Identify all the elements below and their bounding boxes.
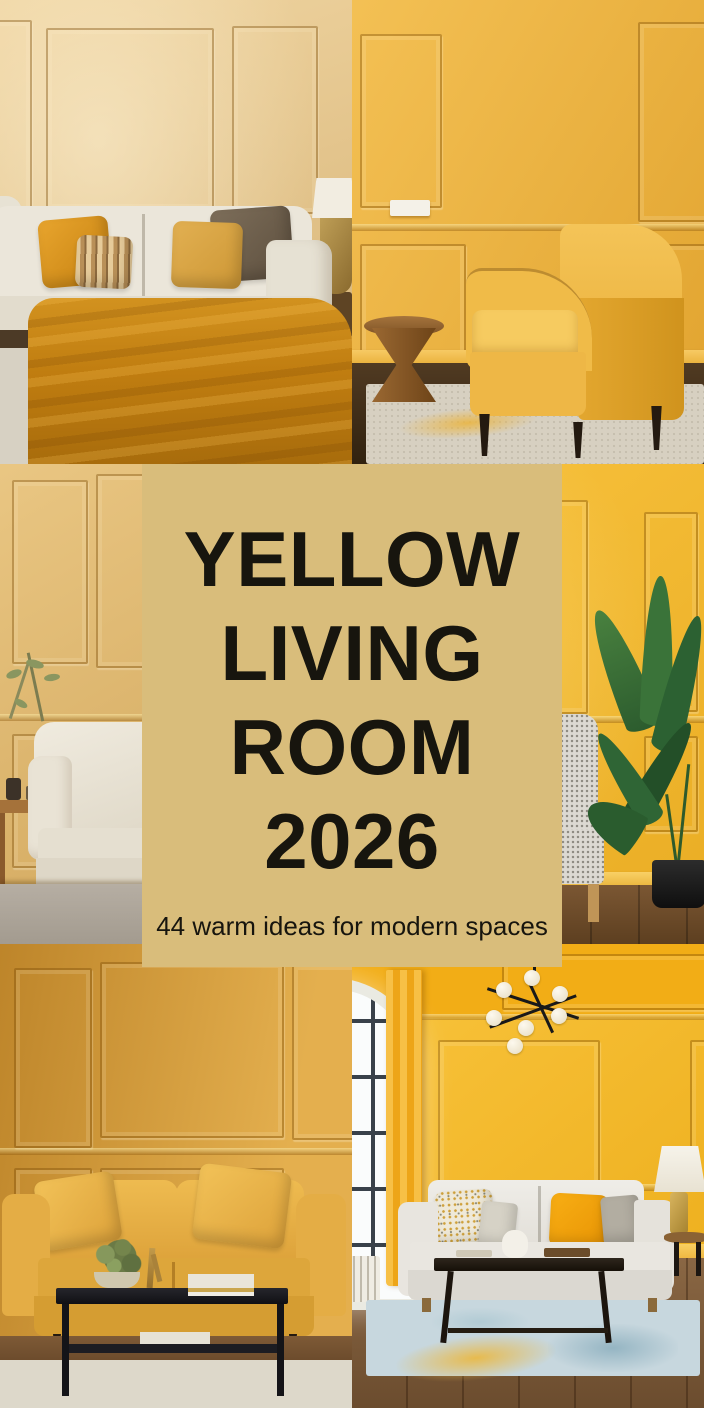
title-line-2: LIVING bbox=[142, 606, 562, 700]
radiator bbox=[352, 1256, 380, 1302]
black-plant-pot bbox=[652, 860, 704, 908]
photo-bottom-right bbox=[352, 944, 704, 1408]
decor-tray bbox=[456, 1250, 492, 1257]
mustard-pillow bbox=[171, 221, 243, 289]
title-line-1: YELLOW bbox=[142, 512, 562, 606]
chandelier-globe bbox=[524, 970, 540, 986]
side-table-leg bbox=[0, 813, 5, 887]
coffee-table-leg bbox=[277, 1304, 284, 1396]
wall-panel-molding bbox=[0, 20, 32, 212]
chandelier-globe bbox=[496, 982, 512, 998]
sofa-leg bbox=[422, 1298, 431, 1312]
wall-panel-molding bbox=[360, 34, 442, 208]
armchair-seat-cushion bbox=[472, 310, 578, 358]
chandelier-globe bbox=[518, 1020, 534, 1036]
book-on-shelf bbox=[140, 1332, 210, 1344]
chandelier-globe bbox=[552, 986, 568, 1002]
photo-top-left bbox=[0, 0, 352, 464]
glass-bowl bbox=[94, 1272, 140, 1288]
wall-panel-molding bbox=[438, 1040, 600, 1186]
wall-panel-molding bbox=[46, 28, 214, 210]
striped-pillow bbox=[75, 235, 134, 290]
sofa-cushion-seam bbox=[538, 1186, 541, 1244]
armchair-front bbox=[470, 352, 586, 416]
title-line-3: ROOM bbox=[142, 700, 562, 794]
decor-canister bbox=[6, 778, 21, 800]
coffee-table-top bbox=[56, 1288, 288, 1304]
chandelier-globe bbox=[486, 1010, 502, 1026]
lamp-shade bbox=[654, 1146, 704, 1192]
lamp-base bbox=[670, 1192, 688, 1234]
wall-panel-molding bbox=[292, 964, 352, 1140]
title-card: YELLOW LIVING ROOM 2026 44 warm ideas fo… bbox=[142, 464, 562, 967]
side-table-leg bbox=[696, 1242, 701, 1276]
chandelier-globe bbox=[507, 1038, 523, 1054]
pin-subtitle: 44 warm ideas for modern spaces bbox=[142, 908, 562, 944]
mustard-throw-blanket bbox=[28, 298, 352, 464]
wall-panel-molding bbox=[12, 480, 88, 664]
wall-panel-molding bbox=[14, 968, 92, 1148]
coffee-table-top bbox=[434, 1258, 624, 1271]
title-line-4: 2026 bbox=[142, 794, 562, 888]
photo-bottom-left bbox=[0, 944, 352, 1408]
pale-rug bbox=[0, 1360, 352, 1408]
coffee-table-leg bbox=[62, 1304, 69, 1396]
lamp-shade bbox=[312, 178, 352, 218]
wall-panel-molding bbox=[232, 26, 318, 214]
wall-panel-molding bbox=[638, 22, 704, 222]
photo-top-right bbox=[352, 0, 704, 464]
armchair-side bbox=[578, 298, 684, 420]
wood-tray bbox=[544, 1248, 590, 1257]
chair-leg bbox=[588, 884, 599, 922]
white-teapot bbox=[502, 1230, 528, 1258]
chair-rail-molding bbox=[0, 1148, 352, 1155]
light-switch bbox=[390, 200, 430, 216]
side-table-leg bbox=[674, 1242, 679, 1276]
mustard-pillow bbox=[192, 1163, 293, 1250]
sofa-cushion-seam bbox=[142, 214, 145, 298]
chandelier-globe bbox=[551, 1008, 567, 1024]
wall-panel-molding bbox=[100, 962, 284, 1138]
pin-title: YELLOW LIVING ROOM 2026 bbox=[142, 464, 562, 888]
coffee-table-stretcher bbox=[448, 1328, 608, 1333]
book-stack bbox=[188, 1274, 254, 1288]
coffee-table-shelf bbox=[69, 1344, 277, 1353]
sofa-leg bbox=[648, 1298, 657, 1312]
pinterest-pin-collage: YELLOW LIVING ROOM 2026 44 warm ideas fo… bbox=[0, 0, 704, 1408]
